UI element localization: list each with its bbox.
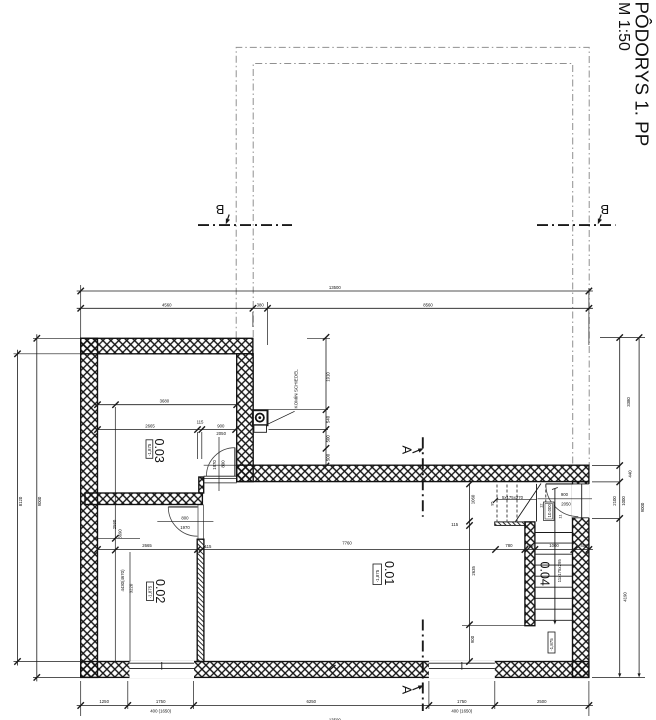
svg-text:7760: 7760 [342, 541, 352, 546]
svg-text:-1,875: -1,875 [375, 569, 380, 582]
svg-text:6690: 6690 [117, 529, 122, 539]
svg-text:11x175x295: 11x175x295 [557, 559, 562, 583]
svg-text:900: 900 [470, 635, 475, 643]
svg-text:-1,875: -1,875 [147, 443, 152, 456]
svg-text:900: 900 [561, 492, 569, 497]
svg-text:95: 95 [491, 501, 495, 505]
svg-text:0.01: 0.01 [382, 561, 396, 585]
svg-text:900: 900 [217, 423, 225, 428]
svg-text:2500: 2500 [537, 699, 547, 704]
svg-text:115: 115 [197, 420, 204, 425]
svg-text:1970: 1970 [212, 460, 217, 470]
svg-text:2590: 2590 [112, 519, 117, 529]
svg-text:2050: 2050 [216, 431, 226, 436]
svg-text:2635: 2635 [471, 566, 476, 576]
svg-text:2665: 2665 [145, 423, 155, 428]
svg-text:12: 12 [538, 503, 543, 508]
svg-text:9000: 9000 [37, 496, 42, 506]
svg-text:M 1:50: M 1:50 [615, 2, 632, 51]
svg-text:1750: 1750 [156, 699, 166, 704]
svg-text:1250: 1250 [99, 699, 109, 704]
svg-text:500: 500 [325, 453, 330, 461]
svg-text:A: A [400, 446, 415, 455]
svg-text:1060: 1060 [470, 494, 475, 504]
svg-text:2665: 2665 [142, 543, 152, 548]
svg-text:115: 115 [451, 522, 458, 527]
svg-text:380: 380 [257, 302, 265, 307]
svg-text:8560: 8560 [423, 302, 433, 307]
svg-text:400: 400 [580, 543, 588, 548]
svg-text:800: 800 [181, 515, 189, 520]
svg-text:10.000: 10.000 [547, 504, 552, 518]
svg-text:2100: 2100 [612, 496, 617, 506]
svg-text:4190: 4190 [622, 592, 627, 602]
svg-text:A: A [400, 686, 415, 695]
svg-text:1750: 1750 [457, 699, 467, 704]
svg-text:B: B [216, 202, 225, 217]
svg-text:B: B [600, 202, 609, 217]
svg-text:0.04: 0.04 [538, 562, 552, 586]
svg-text:400 (1650): 400 (1650) [150, 708, 171, 713]
svg-text:4560: 4560 [162, 302, 172, 307]
svg-text:9000: 9000 [640, 502, 645, 512]
svg-text:400: 400 [526, 543, 534, 548]
svg-text:3680: 3680 [160, 398, 170, 403]
svg-text:1910: 1910 [325, 372, 330, 382]
svg-text:8120: 8120 [18, 496, 23, 506]
svg-text:KOMÍN SCHIEDEL: KOMÍN SCHIEDEL [292, 369, 298, 409]
svg-text:4430(4670): 4430(4670) [120, 569, 125, 592]
svg-text:1000: 1000 [549, 543, 559, 548]
svg-text:-1,875: -1,875 [148, 585, 153, 598]
svg-text:0.02: 0.02 [153, 579, 167, 603]
svg-text:PÔDORYS 1. PP: PÔDORYS 1. PP [632, 2, 653, 147]
svg-text:115: 115 [205, 544, 212, 549]
svg-text:500: 500 [325, 435, 330, 443]
svg-text:2050: 2050 [561, 502, 571, 507]
svg-text:0.03: 0.03 [152, 439, 166, 463]
svg-text:400 (1650): 400 (1650) [451, 708, 472, 713]
svg-text:800: 800 [221, 460, 226, 468]
svg-text:3380: 3380 [626, 397, 631, 407]
svg-text:-1,875: -1,875 [549, 638, 554, 651]
svg-text:3220: 3220 [128, 583, 133, 593]
svg-text:1000: 1000 [621, 496, 626, 506]
svg-text:780: 780 [505, 543, 513, 548]
svg-text:1970: 1970 [180, 525, 190, 530]
svg-text:6250: 6250 [307, 699, 317, 704]
svg-text:440: 440 [627, 470, 632, 478]
svg-text:540: 540 [325, 415, 330, 423]
svg-text:13500: 13500 [329, 285, 342, 290]
